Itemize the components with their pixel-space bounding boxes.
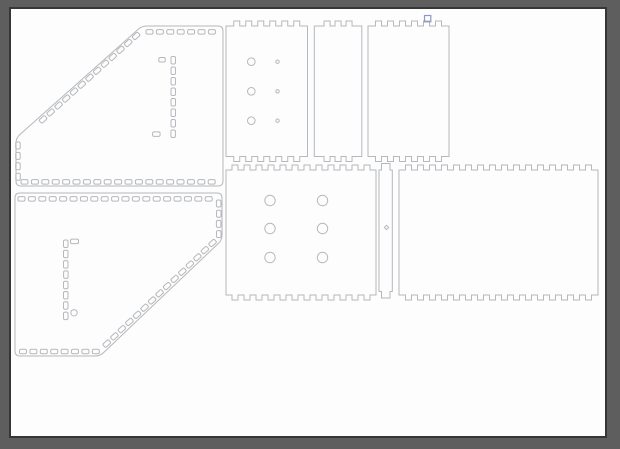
cut-layout-svg xyxy=(0,0,620,449)
app-canvas xyxy=(0,0,620,449)
